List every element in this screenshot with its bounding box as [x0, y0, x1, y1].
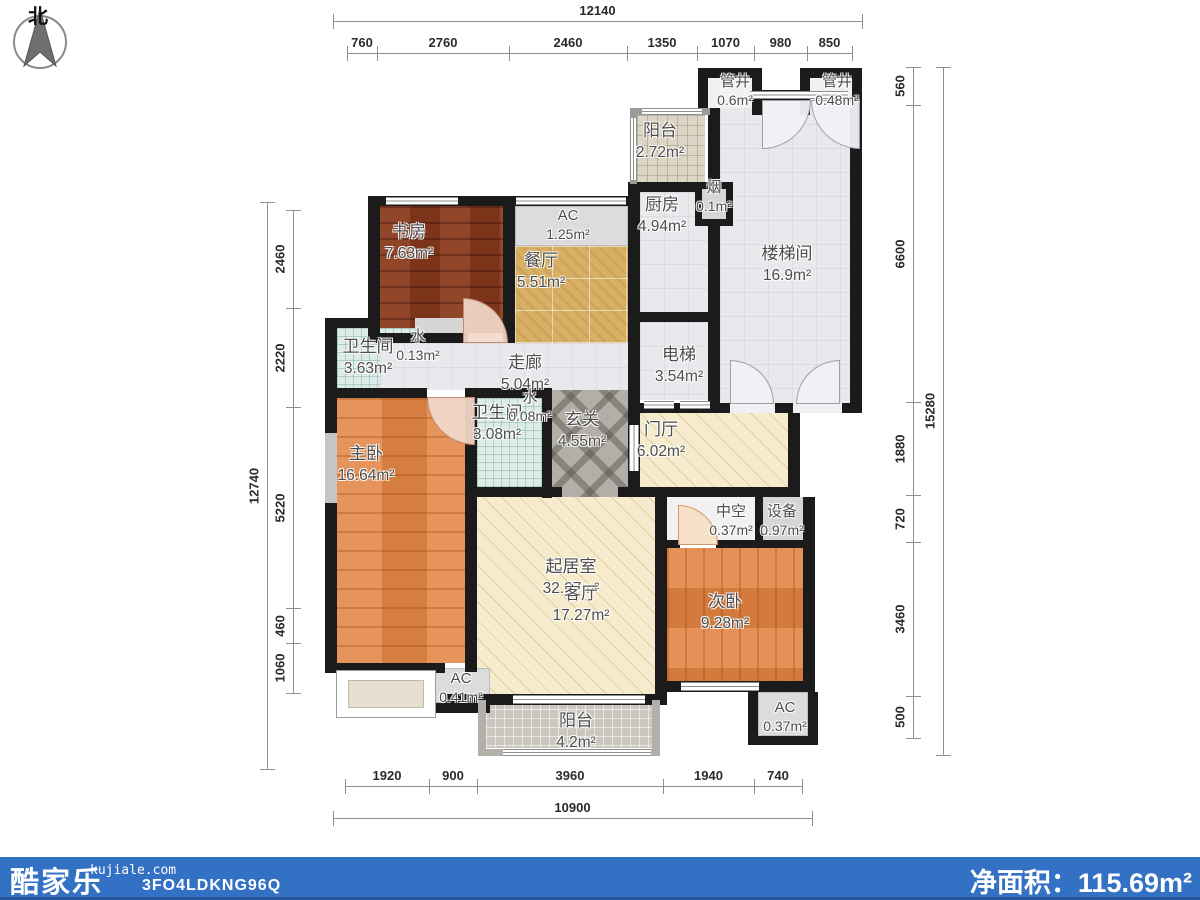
dimension-line — [347, 53, 852, 54]
room-label-void: 中空 0.37m² — [709, 502, 753, 540]
room-label-water2: 水 0.08m² — [508, 388, 552, 426]
dimension-tick — [754, 779, 755, 794]
dimension-tick — [754, 46, 755, 61]
bay-window-sill — [348, 680, 424, 708]
plan-code: 3FO4LDKNG96Q — [142, 877, 281, 895]
dimension-tick — [906, 105, 921, 106]
dimension-label: 10900 — [554, 800, 590, 815]
dimension-tick — [906, 495, 921, 496]
room-label-elevator: 电梯 3.54m² — [655, 344, 703, 388]
dimension-tick — [862, 14, 863, 29]
dimension-label: 15280 — [923, 393, 938, 429]
dimension-tick — [345, 779, 346, 794]
wall-segment — [655, 487, 667, 705]
dimension-tick — [906, 542, 921, 543]
dimension-tick — [333, 811, 334, 826]
wall-segment — [628, 312, 720, 322]
dimension-label: 1350 — [648, 35, 677, 50]
room-label-study: 书房 7.63m² — [385, 221, 433, 265]
dimension-label: 1920 — [373, 768, 402, 783]
wall-segment — [503, 206, 515, 343]
dimension-label: 500 — [893, 706, 908, 728]
room-label-master: 主卧 16.64m² — [338, 443, 395, 487]
balcony-frame — [652, 700, 660, 756]
dimension-label: 1940 — [694, 768, 723, 783]
dimension-tick — [333, 14, 334, 29]
window — [681, 682, 759, 691]
window — [386, 197, 458, 205]
dimension-label: 1060 — [273, 654, 288, 683]
room-label-ac-top: AC 1.25m² — [546, 206, 590, 244]
dimension-tick — [906, 738, 921, 739]
dimension-label: 1070 — [711, 35, 740, 50]
dimension-tick — [509, 46, 510, 61]
dimension-tick — [906, 67, 921, 68]
wall-segment — [748, 736, 818, 745]
window — [513, 695, 645, 704]
dimension-tick — [663, 779, 664, 794]
dimension-tick — [812, 811, 813, 826]
dimension-line — [333, 818, 812, 819]
wall-segment — [788, 413, 800, 497]
room-label-dining: 餐厅 5.51m² — [517, 250, 565, 294]
dimension-tick — [936, 755, 951, 756]
dimension-line — [293, 210, 294, 693]
dimension-tick — [627, 46, 628, 61]
dimension-tick — [477, 779, 478, 794]
dimension-tick — [260, 202, 275, 203]
room-label-bedroom2: 次卧 9.28m² — [701, 591, 749, 635]
dimension-label: 900 — [442, 768, 464, 783]
dimension-label: 2460 — [273, 245, 288, 274]
dimension-label: 2460 — [554, 35, 583, 50]
dimension-label: 3460 — [893, 605, 908, 634]
dimension-tick — [936, 67, 951, 68]
room-label-shaft2: 管井 0.48m² — [815, 72, 859, 110]
room-label-balcony-bottom: 阳台 4.2m² — [556, 710, 596, 754]
dimension-tick — [286, 643, 301, 644]
wall-segment — [628, 487, 800, 497]
dimension-label: 560 — [893, 75, 908, 97]
room-label-ac-bottom-right: AC 0.37m² — [763, 698, 807, 736]
north-label: 北 — [28, 0, 48, 29]
dimension-label: 12140 — [579, 3, 615, 18]
footer-bar: 酷家乐 kujiale.com 3FO4LDKNG96Q 净面积：115.69m… — [0, 857, 1200, 897]
dimension-line — [345, 786, 802, 787]
dimension-tick — [286, 693, 301, 694]
dimension-tick — [697, 46, 698, 61]
room-label-foyer: 门厅 6.02m² — [637, 419, 685, 463]
dimension-line — [943, 67, 944, 755]
room-master — [337, 398, 465, 663]
room-label-kitchen: 厨房 4.94m² — [638, 194, 686, 238]
stair-door-gap — [793, 403, 842, 413]
wall-segment — [477, 487, 562, 497]
window — [644, 401, 674, 409]
north-indicator: 北 — [8, 0, 78, 72]
wall-segment — [325, 388, 427, 398]
dimension-tick — [807, 46, 808, 61]
room-label-water1: 水 0.13m² — [396, 327, 440, 365]
room-label-shaft1: 管井 0.6m² — [717, 72, 753, 110]
room-label-entry: 玄关 4.55m² — [558, 409, 606, 453]
wall-segment — [716, 540, 803, 548]
dimension-tick — [286, 210, 301, 211]
window — [642, 108, 702, 115]
stair-door-gap — [730, 403, 775, 413]
room-label-smoke: 烟 0.1m² — [696, 178, 732, 216]
dimension-label: 760 — [351, 35, 373, 50]
wall-segment — [708, 100, 720, 412]
window-gray — [325, 433, 337, 503]
dimension-tick — [347, 46, 348, 61]
dimension-tick — [260, 769, 275, 770]
dimension-label: 12740 — [247, 467, 262, 503]
dimension-line — [333, 21, 862, 22]
dimension-label: 5220 — [273, 493, 288, 522]
room-label-stairwell: 楼梯间 16.9m² — [762, 243, 813, 287]
dimension-tick — [377, 46, 378, 61]
net-area: 净面积：115.69m² — [970, 861, 1192, 900]
dimension-label: 6600 — [893, 239, 908, 268]
balcony-frame — [478, 700, 486, 756]
dimension-label: 2220 — [273, 343, 288, 372]
dimension-label: 460 — [273, 615, 288, 637]
dimension-tick — [906, 696, 921, 697]
dimension-tick — [802, 779, 803, 794]
room-label-bath1: 卫生间 3.63m² — [343, 336, 394, 380]
dimension-label: 850 — [819, 35, 841, 50]
wall-segment — [803, 497, 815, 692]
window — [516, 197, 626, 205]
dimension-tick — [906, 402, 921, 403]
room-label-equipment: 设备 0.97m² — [760, 502, 804, 540]
dimension-line — [267, 202, 268, 769]
dimension-tick — [286, 407, 301, 408]
dimension-label: 720 — [893, 508, 908, 530]
dimension-label: 1880 — [893, 434, 908, 463]
dimension-tick — [286, 608, 301, 609]
dimension-label: 740 — [767, 768, 789, 783]
dimension-label: 3960 — [556, 768, 585, 783]
floorplan-page: 北 书房 7.63m² AC 1.25m² 餐厅 5.51m² 卫生间 3.63… — [0, 0, 1200, 900]
room-label-living-sub: 客厅 17.27m² — [553, 583, 610, 627]
dimension-label: 2760 — [429, 35, 458, 50]
window — [680, 401, 710, 409]
kujiale-domain: kujiale.com — [90, 863, 176, 878]
dimension-label: 980 — [770, 35, 792, 50]
dimension-tick — [852, 46, 853, 61]
room-label-ac-bottom-left: AC 0.41m² — [439, 669, 483, 707]
dimension-tick — [286, 308, 301, 309]
dimension-tick — [429, 779, 430, 794]
room-label-balcony-top: 阳台 2.72m² — [636, 120, 684, 164]
